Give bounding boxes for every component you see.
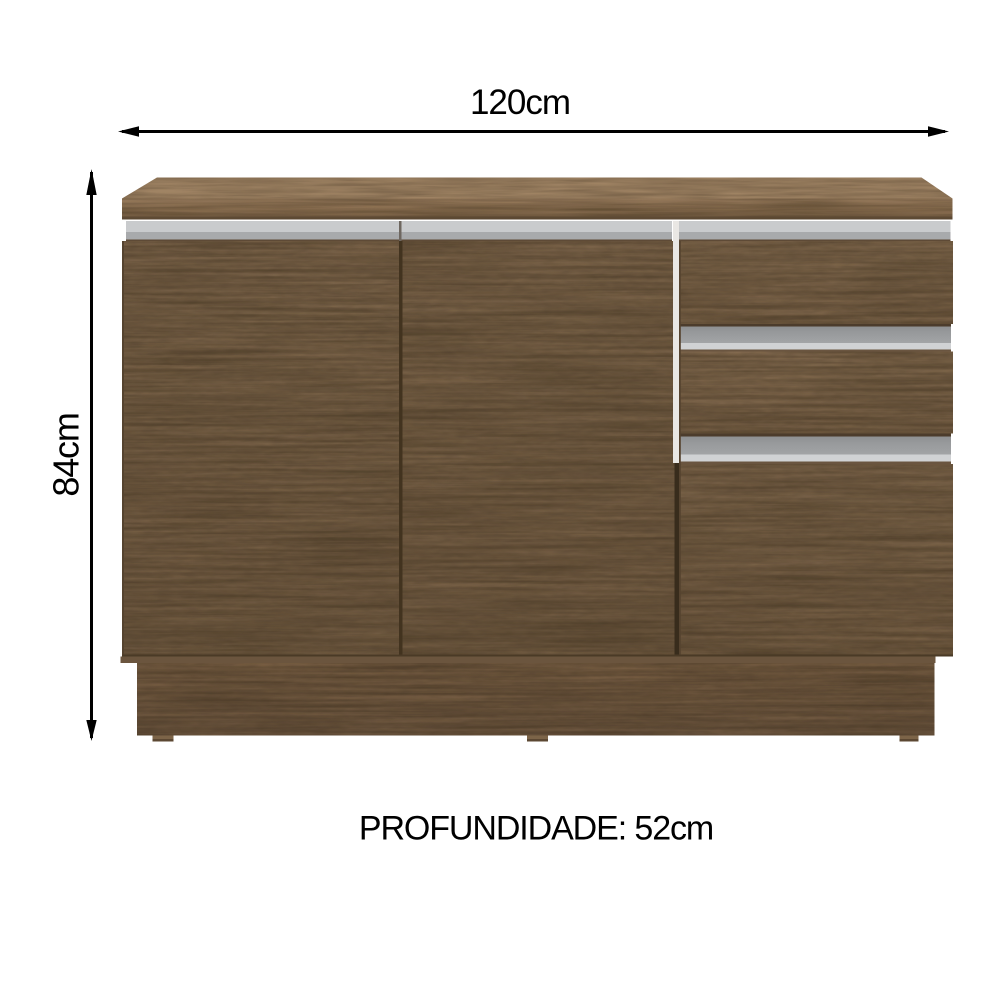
svg-text:120cm: 120cm xyxy=(470,83,570,122)
svg-text:84cm: 84cm xyxy=(46,413,87,496)
svg-text:PROFUNDIDADE: 52cm: PROFUNDIDADE: 52cm xyxy=(359,810,713,848)
